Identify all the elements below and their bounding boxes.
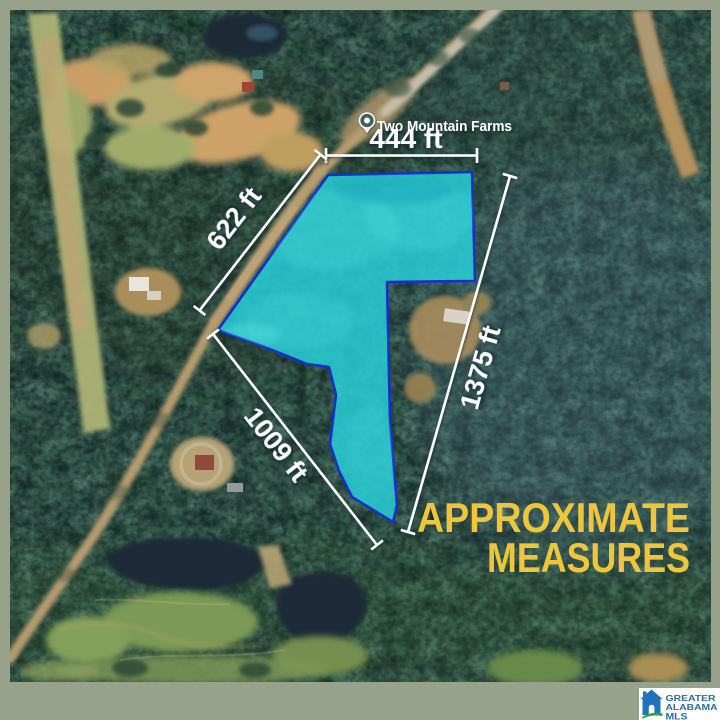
svg-text:GREATER: GREATER — [666, 694, 716, 703]
svg-text:MLS: MLS — [666, 711, 688, 720]
svg-text:444 ft: 444 ft — [369, 123, 442, 154]
svg-text:MEASURES: MEASURES — [487, 534, 690, 581]
